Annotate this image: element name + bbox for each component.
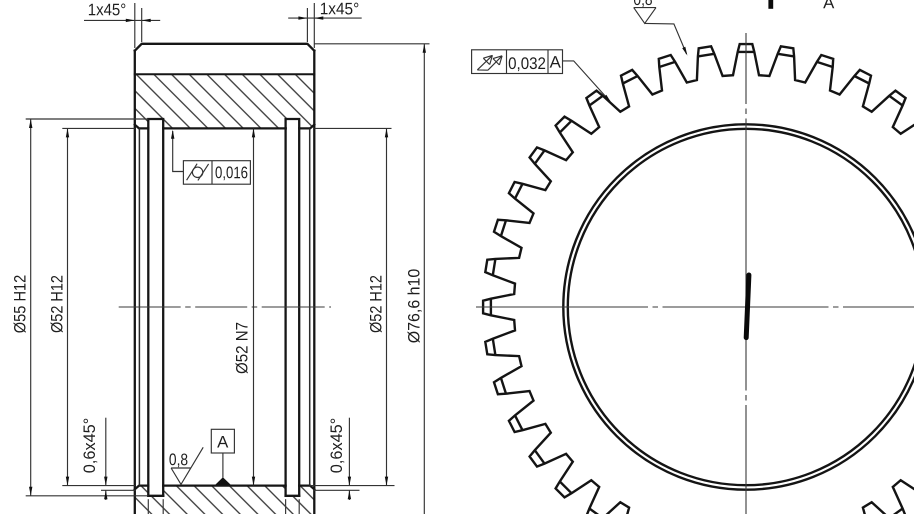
svg-text:0,016: 0,016 [215, 163, 248, 182]
svg-text:A: A [550, 53, 562, 72]
svg-text:0,6x45°: 0,6x45° [327, 418, 346, 473]
svg-text:1x45°: 1x45° [320, 0, 360, 18]
svg-text:0,8: 0,8 [633, 0, 652, 9]
svg-text:Ø52 N7: Ø52 N7 [232, 322, 251, 374]
svg-text:Ø52 H12: Ø52 H12 [367, 275, 386, 333]
svg-text:Ø52 H12: Ø52 H12 [48, 275, 67, 333]
svg-text:Ø55 H12: Ø55 H12 [11, 275, 30, 333]
svg-text:0,8: 0,8 [169, 450, 188, 469]
svg-text:1x45°: 1x45° [88, 0, 127, 19]
svg-text:0,032: 0,032 [508, 54, 546, 73]
svg-text:Ø76,6 h10: Ø76,6 h10 [404, 269, 423, 344]
svg-text:A: A [823, 0, 835, 12]
svg-text:A: A [217, 432, 229, 451]
svg-text:0,6x45°: 0,6x45° [80, 418, 99, 473]
